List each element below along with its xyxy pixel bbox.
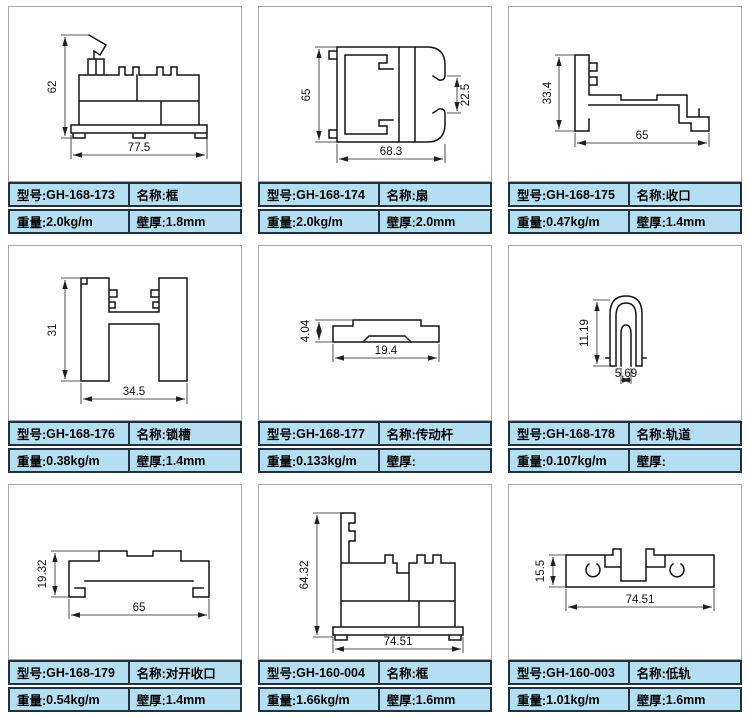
spec-row: 重量:0.38kg/m 壁厚:1.4mm xyxy=(8,448,242,473)
thickness-label: 壁厚: xyxy=(387,212,416,231)
weight-label: 重量: xyxy=(267,451,296,470)
profile-drawing: 11.19 5.69 xyxy=(508,245,742,421)
profile-panel: 62 77.5 型号:GH-168-173 名称:框 重量:2.0kg/m 壁厚… xyxy=(8,6,242,234)
name-cell: 名称:扇 xyxy=(380,184,490,205)
model-cell: 型号:GH-168-178 xyxy=(510,423,630,444)
dimension-label: 64.32 xyxy=(299,561,311,590)
model-cell: 型号:GH-168-176 xyxy=(10,423,130,444)
weight-label: 重量: xyxy=(267,690,296,709)
spec-row: 重量:0.47kg/m 壁厚:1.4mm xyxy=(508,209,742,234)
spec-table: 型号:GH-168-177 名称:传动杆 重量:0.133kg/m 壁厚: xyxy=(258,421,492,473)
profile-drawing: 64.32 74.51 xyxy=(258,484,492,660)
model-value: GH-168-178 xyxy=(546,427,615,441)
thickness-value: 1.4mm xyxy=(166,454,206,468)
extension-lines xyxy=(61,35,207,159)
profile-panel: 19.32 65 型号:GH-168-179 名称:对开收口 重量:0.54kg… xyxy=(8,484,242,712)
profile-drawing: 31 34.5 xyxy=(8,245,242,421)
thickness-cell: 壁厚:1.8mm xyxy=(130,211,240,232)
weight-value: 1.01kg/m xyxy=(546,693,600,707)
spec-table: 型号:GH-168-179 名称:对开收口 重量:0.54kg/m 壁厚:1.4… xyxy=(8,660,242,712)
spec-row: 重量:1.01kg/m 壁厚:1.6mm xyxy=(508,687,742,712)
thickness-cell: 壁厚:1.4mm xyxy=(630,211,740,232)
name-cell: 名称:框 xyxy=(130,184,240,205)
name-value: 锁槽 xyxy=(166,424,191,443)
model-label: 型号: xyxy=(267,424,296,443)
name-label: 名称: xyxy=(387,663,416,682)
name-value: 框 xyxy=(166,185,179,204)
name-cell: 名称:框 xyxy=(380,662,490,683)
profile-drawing: 33.4 65 xyxy=(508,6,742,182)
name-cell: 名称:低轨 xyxy=(630,662,740,683)
thickness-label: 壁厚: xyxy=(137,690,166,709)
name-label: 名称: xyxy=(137,185,166,204)
thickness-value: 2.0mm xyxy=(416,215,456,229)
weight-value: 0.54kg/m xyxy=(46,693,100,707)
model-cell: 型号:GH-168-173 xyxy=(10,184,130,205)
thickness-label: 壁厚: xyxy=(387,451,416,470)
model-cell: 型号:GH-168-175 xyxy=(510,184,630,205)
thickness-cell: 壁厚: xyxy=(380,450,490,471)
profile-drawing: 15.5 74.51 xyxy=(508,484,742,660)
profile-drawing: 62 77.5 xyxy=(8,6,242,182)
weight-cell: 重量:0.133kg/m xyxy=(260,450,380,471)
spec-row: 重量:2.0kg/m 壁厚:2.0mm xyxy=(258,209,492,234)
weight-value: 0.38kg/m xyxy=(46,454,100,468)
spec-row: 重量:2.0kg/m 壁厚:1.8mm xyxy=(8,209,242,234)
model-label: 型号: xyxy=(17,663,46,682)
model-label: 型号: xyxy=(267,185,296,204)
model-value: GH-168-176 xyxy=(46,427,115,441)
name-label: 名称: xyxy=(637,424,666,443)
weight-label: 重量: xyxy=(17,451,46,470)
profile-panel: 4.04 19.4 型号:GH-168-177 名称:传动杆 重量:0.133k… xyxy=(258,245,492,473)
thickness-cell: 壁厚:1.6mm xyxy=(380,689,490,710)
model-label: 型号: xyxy=(17,424,46,443)
name-value: 轨道 xyxy=(666,424,691,443)
thickness-cell: 壁厚: xyxy=(630,450,740,471)
name-cell: 名称:轨道 xyxy=(630,423,740,444)
weight-label: 重量: xyxy=(267,212,296,231)
spec-row: 重量:0.107kg/m 壁厚: xyxy=(508,448,742,473)
thickness-label: 壁厚: xyxy=(137,212,166,231)
profile-cross-section-diagram: 31 34.5 xyxy=(9,246,241,420)
model-cell: 型号:GH-168-177 xyxy=(260,423,380,444)
thickness-label: 壁厚: xyxy=(387,690,416,709)
weight-value: 2.0kg/m xyxy=(46,215,93,229)
dimension-label: 31 xyxy=(47,324,59,337)
dimension-label: 34.5 xyxy=(123,386,145,398)
thickness-label: 壁厚: xyxy=(637,451,666,470)
profile-cross-section-diagram: 62 77.5 xyxy=(9,7,241,181)
profile-panel: 33.4 65 型号:GH-168-175 名称:收口 重量:0.47kg/m … xyxy=(508,6,742,234)
profile-cross-section-diagram: 64.32 74.51 xyxy=(259,485,491,659)
name-cell: 名称:对开收口 xyxy=(130,662,240,683)
name-value: 低轨 xyxy=(666,663,691,682)
model-value: GH-168-179 xyxy=(46,666,115,680)
profile-panel: 64.32 74.51 型号:GH-160-004 名称:框 重量:1.66kg… xyxy=(258,484,492,712)
profile-cross-section-diagram: 11.19 5.69 xyxy=(509,246,741,420)
weight-cell: 重量:0.38kg/m xyxy=(10,450,130,471)
spec-row: 型号:GH-168-179 名称:对开收口 xyxy=(8,660,242,685)
profile-panel: 65 22.5 68.3 型号:GH-168-174 名称:扇 重量:2.0kg… xyxy=(258,6,492,234)
name-label: 名称: xyxy=(637,185,666,204)
model-value: GH-168-177 xyxy=(296,427,365,441)
thickness-value: 1.6mm xyxy=(416,693,456,707)
weight-cell: 重量:1.01kg/m xyxy=(510,689,630,710)
spec-row: 型号:GH-168-178 名称:轨道 xyxy=(508,421,742,446)
profile-outline xyxy=(69,551,209,597)
profile-outline xyxy=(606,296,646,366)
spec-table: 型号:GH-160-003 名称:低轨 重量:1.01kg/m 壁厚:1.6mm xyxy=(508,660,742,712)
profile-cross-section-diagram: 4.04 19.4 xyxy=(259,246,491,420)
dimension-label: 65 xyxy=(133,602,146,614)
catalog-grid: 62 77.5 型号:GH-168-173 名称:框 重量:2.0kg/m 壁厚… xyxy=(8,6,742,712)
dimension-label: 22.5 xyxy=(460,84,472,106)
thickness-cell: 壁厚:1.4mm xyxy=(130,689,240,710)
name-label: 名称: xyxy=(387,424,416,443)
thickness-value: 1.4mm xyxy=(166,693,206,707)
profile-outline xyxy=(333,320,439,342)
thickness-label: 壁厚: xyxy=(637,212,666,231)
profile-outline xyxy=(329,47,445,142)
weight-cell: 重量:2.0kg/m xyxy=(260,211,380,232)
spec-row: 型号:GH-168-177 名称:传动杆 xyxy=(258,421,492,446)
dimension-label: 11.19 xyxy=(579,319,591,347)
weight-value: 0.47kg/m xyxy=(546,215,600,229)
dimension-label: 33.4 xyxy=(542,81,554,104)
weight-cell: 重量:0.107kg/m xyxy=(510,450,630,471)
spec-row: 型号:GH-160-003 名称:低轨 xyxy=(508,660,742,685)
dimension-label: 4.04 xyxy=(300,319,312,342)
dimension-label: 74.51 xyxy=(384,636,413,648)
name-cell: 名称:收口 xyxy=(630,184,740,205)
weight-cell: 重量:1.66kg/m xyxy=(260,689,380,710)
profile-outline xyxy=(71,35,207,138)
profile-outline xyxy=(566,549,714,587)
model-value: GH-168-175 xyxy=(546,188,615,202)
weight-cell: 重量:0.54kg/m xyxy=(10,689,130,710)
model-cell: 型号:GH-168-174 xyxy=(260,184,380,205)
dimension-label: 5.69 xyxy=(615,368,637,380)
model-value: GH-160-003 xyxy=(546,666,615,680)
weight-value: 0.107kg/m xyxy=(546,454,606,468)
spec-table: 型号:GH-168-173 名称:框 重量:2.0kg/m 壁厚:1.8mm xyxy=(8,182,242,234)
weight-label: 重量: xyxy=(517,212,546,231)
profile-cross-section-diagram: 65 22.5 68.3 xyxy=(259,7,491,181)
name-label: 名称: xyxy=(137,424,166,443)
profile-cross-section-diagram: 19.32 65 xyxy=(9,485,241,659)
weight-label: 重量: xyxy=(17,690,46,709)
thickness-value: 1.4mm xyxy=(666,215,706,229)
dimension-label: 65 xyxy=(636,130,649,142)
weight-value: 1.66kg/m xyxy=(296,693,350,707)
dimension-label: 74.51 xyxy=(626,594,655,606)
model-cell: 型号:GH-168-179 xyxy=(10,662,130,683)
name-value: 对开收口 xyxy=(166,663,216,682)
spec-row: 重量:1.66kg/m 壁厚:1.6mm xyxy=(258,687,492,712)
name-value: 扇 xyxy=(416,185,429,204)
thickness-label: 壁厚: xyxy=(637,690,666,709)
thickness-cell: 壁厚:2.0mm xyxy=(380,211,490,232)
model-label: 型号: xyxy=(17,185,46,204)
spec-row: 型号:GH-168-175 名称:收口 xyxy=(508,182,742,207)
name-cell: 名称:锁槽 xyxy=(130,423,240,444)
dimension-label: 77.5 xyxy=(128,142,150,154)
spec-table: 型号:GH-168-175 名称:收口 重量:0.47kg/m 壁厚:1.4mm xyxy=(508,182,742,234)
spec-row: 型号:GH-168-174 名称:扇 xyxy=(258,182,492,207)
thickness-cell: 壁厚:1.4mm xyxy=(130,450,240,471)
profile-cross-section-diagram: 15.5 74.51 xyxy=(509,485,741,659)
dimension-label: 19.4 xyxy=(375,345,398,357)
model-label: 型号: xyxy=(517,424,546,443)
dimension-label: 62 xyxy=(47,81,59,94)
spec-row: 型号:GH-168-176 名称:锁槽 xyxy=(8,421,242,446)
name-label: 名称: xyxy=(137,663,166,682)
name-value: 框 xyxy=(416,663,429,682)
weight-label: 重量: xyxy=(17,212,46,231)
model-cell: 型号:GH-160-003 xyxy=(510,662,630,683)
name-label: 名称: xyxy=(387,185,416,204)
profile-panel: 11.19 5.69 型号:GH-168-178 名称:轨道 重量:0.107k… xyxy=(508,245,742,473)
thickness-value: 1.8mm xyxy=(166,215,206,229)
spec-table: 型号:GH-168-176 名称:锁槽 重量:0.38kg/m 壁厚:1.4mm xyxy=(8,421,242,473)
model-label: 型号: xyxy=(517,663,546,682)
extension-lines xyxy=(555,55,709,147)
weight-cell: 重量:0.47kg/m xyxy=(510,211,630,232)
model-value: GH-168-174 xyxy=(296,188,365,202)
profile-panel: 31 34.5 型号:GH-168-176 名称:锁槽 重量:0.38kg/m … xyxy=(8,245,242,473)
profile-drawing: 4.04 19.4 xyxy=(258,245,492,421)
weight-value: 0.133kg/m xyxy=(296,454,356,468)
weight-value: 2.0kg/m xyxy=(296,215,343,229)
profile-outline xyxy=(575,55,709,131)
model-label: 型号: xyxy=(517,185,546,204)
thickness-label: 壁厚: xyxy=(137,451,166,470)
name-cell: 名称:传动杆 xyxy=(380,423,490,444)
model-label: 型号: xyxy=(267,663,296,682)
spec-row: 重量:0.133kg/m 壁厚: xyxy=(258,448,492,473)
spec-row: 重量:0.54kg/m 壁厚:1.4mm xyxy=(8,687,242,712)
model-cell: 型号:GH-160-004 xyxy=(260,662,380,683)
profile-outline xyxy=(81,278,187,381)
dimension-label: 68.3 xyxy=(380,146,402,158)
dimension-label: 65 xyxy=(301,89,313,102)
model-value: GH-160-004 xyxy=(296,666,365,680)
profile-cross-section-diagram: 33.4 65 xyxy=(509,7,741,181)
weight-cell: 重量:2.0kg/m xyxy=(10,211,130,232)
weight-label: 重量: xyxy=(517,690,546,709)
name-value: 收口 xyxy=(666,185,691,204)
thickness-value: 1.6mm xyxy=(666,693,706,707)
spec-row: 型号:GH-160-004 名称:框 xyxy=(258,660,492,685)
spec-table: 型号:GH-168-178 名称:轨道 重量:0.107kg/m 壁厚: xyxy=(508,421,742,473)
spec-row: 型号:GH-168-173 名称:框 xyxy=(8,182,242,207)
profile-outline xyxy=(333,513,463,640)
spec-table: 型号:GH-168-174 名称:扇 重量:2.0kg/m 壁厚:2.0mm xyxy=(258,182,492,234)
dimension-label: 19.32 xyxy=(37,560,49,589)
dimension-label: 15.5 xyxy=(535,560,547,582)
extension-lines xyxy=(313,513,463,653)
name-label: 名称: xyxy=(637,663,666,682)
weight-label: 重量: xyxy=(517,451,546,470)
name-value: 传动杆 xyxy=(416,424,454,443)
spec-table: 型号:GH-160-004 名称:框 重量:1.66kg/m 壁厚:1.6mm xyxy=(258,660,492,712)
profile-drawing: 19.32 65 xyxy=(8,484,242,660)
thickness-cell: 壁厚:1.6mm xyxy=(630,689,740,710)
model-value: GH-168-173 xyxy=(46,188,115,202)
profile-drawing: 65 22.5 68.3 xyxy=(258,6,492,182)
profile-panel: 15.5 74.51 型号:GH-160-003 名称:低轨 重量:1.01kg… xyxy=(508,484,742,712)
